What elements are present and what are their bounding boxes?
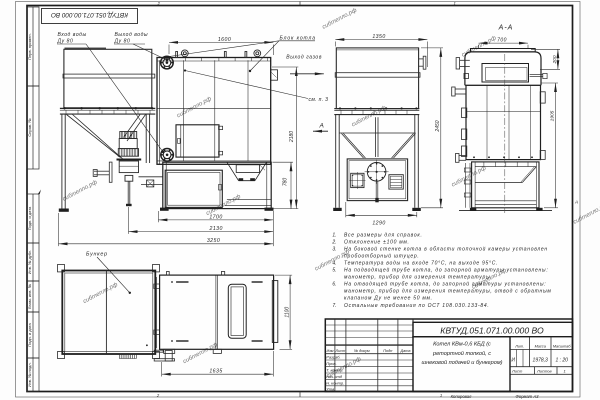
svg-text:1905: 1905 (550, 110, 556, 121)
svg-text:Разраб.: Разраб. (326, 355, 340, 360)
svg-text:3250: 3250 (207, 238, 220, 244)
svg-text:Формат А3: Формат А3 (516, 394, 540, 399)
svg-text:1350: 1350 (372, 34, 385, 40)
svg-text:шнековой подачей и бункером): шнековой подачей и бункером) (421, 359, 502, 366)
svg-text:Остальные требования по ОСТ 10: Остальные требования по ОСТ 108.030.133-… (344, 303, 490, 309)
svg-text:Подп: Подп (383, 349, 393, 353)
svg-text:200: 200 (552, 55, 558, 64)
svg-text:пробоотборный штуцер.: пробоотборный штуцер. (344, 253, 419, 260)
svg-text:Температура воды на входе 70°С: Температура воды на входе 70°С, на выход… (344, 261, 498, 267)
svg-text:2130: 2130 (209, 226, 223, 232)
svg-text:Отклонение ±100 мм.: Отклонение ±100 мм. (344, 240, 410, 246)
svg-text:Инв. № дубл.: Инв. № дубл. (27, 250, 32, 275)
svg-text:А-А: А-А (498, 25, 514, 32)
svg-text:Пров.: Пров. (326, 361, 337, 366)
svg-text:1.: 1. (332, 233, 336, 239)
svg-text:700: 700 (497, 38, 507, 44)
svg-text:И: И (511, 358, 515, 364)
svg-text:Лит.: Лит. (514, 344, 524, 348)
svg-text:Дата: Дата (399, 349, 410, 353)
svg-text:3.: 3. (332, 247, 336, 253)
svg-text:манометр, прибор для измерения: манометр, прибор для измерения температу… (344, 275, 492, 281)
svg-text:780: 780 (282, 178, 288, 187)
svg-text:Лист: Лист (511, 368, 523, 373)
svg-text:1600: 1600 (218, 37, 231, 43)
svg-text:Котел КВм-0,6 КБД (с: Котел КВм-0,6 КБД (с (433, 342, 491, 348)
svg-text:клапаном Ду не менее 50 мм.: клапаном Ду не менее 50 мм. (344, 296, 433, 302)
svg-text:5.: 5. (332, 268, 336, 274)
svg-text:На боковой стенке котла в обла: На боковой стенке котла в области топочн… (344, 246, 548, 253)
svg-text:1: 1 (564, 368, 566, 373)
svg-text:Листов: Листов (536, 368, 552, 373)
svg-text:Н. контр.: Н. контр. (326, 380, 344, 385)
svg-text:ретортной топкой, с: ретортной топкой, с (432, 350, 491, 357)
svg-text:Перв. примен.: Перв. примен. (27, 33, 32, 60)
svg-text:А: А (319, 123, 324, 130)
svg-text:Утв.: Утв. (326, 387, 335, 392)
svg-text:Вход воды: Вход воды (58, 32, 87, 38)
svg-text:На отводящей трубе котла, до з: На отводящей трубе котла, до запорной ар… (344, 281, 546, 288)
svg-text:2180: 2180 (289, 131, 295, 143)
svg-text:Изм: Изм (326, 349, 333, 353)
svg-text:Масштаб: Масштаб (553, 344, 572, 348)
svg-text:А: А (574, 200, 578, 205)
svg-text:1978,3: 1978,3 (533, 358, 549, 364)
svg-text:Справ. №: Справ. № (27, 118, 32, 136)
svg-text:Все размеры для справок.: Все размеры для справок. (344, 233, 423, 239)
svg-text:2.: 2. (331, 240, 336, 246)
svg-text:Копировал: Копировал (451, 394, 472, 399)
svg-text:7.: 7. (332, 303, 336, 309)
svg-text:КВТУД.051.071.00.000 ВО: КВТУД.051.071.00.000 ВО (440, 326, 544, 336)
svg-text:2450: 2450 (435, 120, 441, 132)
svg-text:Лист: Лист (335, 349, 346, 353)
svg-text:Выход газов: Выход газов (286, 54, 322, 60)
svg-text:1: 1 (440, 393, 442, 398)
svg-text:1635: 1635 (209, 369, 222, 375)
svg-text:Подп. и дата: Подп. и дата (27, 322, 32, 346)
svg-text:6.: 6. (332, 282, 336, 288)
svg-text:манометр, прибор для измерения: манометр, прибор для измерения температу… (344, 289, 552, 295)
svg-text:№ докум: № докум (354, 349, 370, 353)
svg-text:1290: 1290 (372, 221, 385, 227)
svg-text:Инв. № подл.: Инв. № подл. (27, 362, 32, 387)
svg-text:Взам. инв. №: Взам. инв. № (27, 284, 32, 309)
svg-text:1100: 1100 (284, 307, 290, 318)
svg-text:Выход воды: Выход воды (115, 32, 149, 38)
svg-text:Блок котла: Блок котла (280, 35, 316, 41)
svg-text:Подп. и дата: Подп. и дата (27, 206, 32, 230)
svg-text:Бункер: Бункер (86, 252, 108, 258)
svg-text:КВТУД.051.071.00.000 ВО: КВТУД.051.071.00.000 ВО (51, 11, 128, 18)
svg-text:Т. контр.: Т. контр. (326, 368, 343, 373)
svg-text:На подводящей трубе котла, до: На подводящей трубе котла, до запорной а… (344, 267, 548, 274)
svg-text:Нач.отд: Нач.отд (326, 374, 343, 379)
svg-text:1 : 20: 1 : 20 (555, 358, 568, 364)
svg-text:1: 1 (454, 1, 456, 6)
svg-text:см. п. 3: см. п. 3 (309, 97, 329, 103)
svg-text:Масса: Масса (535, 344, 546, 348)
